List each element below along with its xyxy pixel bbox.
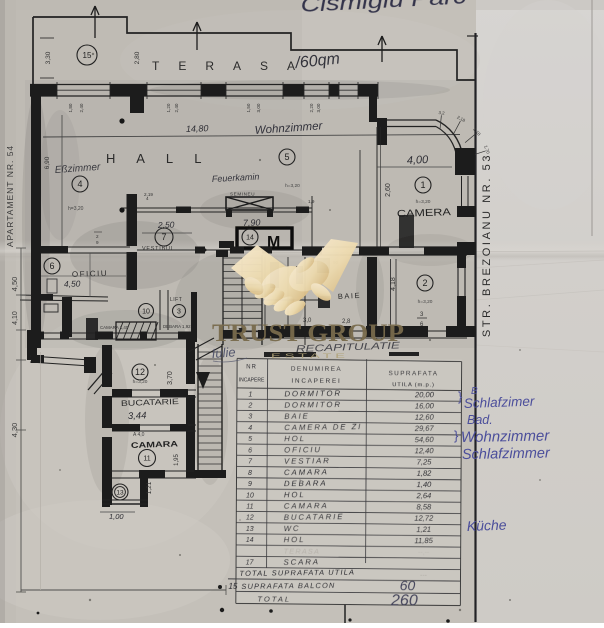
svg-text:14: 14 [246, 235, 254, 242]
svg-text:Schlafzimmer: Schlafzimmer [462, 445, 551, 463]
svg-text:VESTIBUL: VESTIBUL [142, 246, 174, 252]
svg-text:2: 2 [96, 234, 99, 239]
svg-text:1,82: 1,82 [417, 469, 433, 478]
svg-text:HOL: HOL [284, 434, 306, 443]
svg-text:UTILA (m.p.): UTILA (m.p.) [392, 382, 434, 388]
svg-text:3,30: 3,30 [45, 51, 52, 64]
svg-text:1,21: 1,21 [416, 525, 431, 534]
svg-text:DORMITOR: DORMITOR [284, 389, 342, 399]
svg-text:16,00: 16,00 [415, 401, 435, 410]
svg-text:11: 11 [246, 503, 253, 510]
svg-text:9: 9 [248, 481, 252, 488]
svg-text:TERASA: TERASA [152, 59, 314, 73]
svg-text:TOTAL: TOTAL [257, 595, 291, 604]
svg-text:1: 1 [420, 180, 425, 190]
svg-text:3,70: 3,70 [167, 371, 174, 385]
svg-text:h=3,20: h=3,20 [285, 183, 300, 189]
svg-text:3,44: 3,44 [128, 410, 147, 422]
svg-text:STR. BREZOIANU NR. 53: STR. BREZOIANU NR. 53 [481, 153, 493, 337]
svg-text:BAIE: BAIE [338, 291, 362, 301]
svg-text:VESTIAR: VESTIAR [284, 456, 331, 466]
svg-text:E S T A T E: E S T A T E [271, 353, 346, 360]
svg-text:54,60: 54,60 [415, 435, 435, 444]
svg-text:2,60: 2,60 [385, 183, 392, 197]
svg-text:1,50: 1,50 [246, 103, 251, 112]
svg-text:14: 14 [246, 537, 254, 544]
svg-text:SEMINEU: SEMINEU [230, 192, 255, 197]
svg-text:15: 15 [228, 582, 237, 591]
svg-text:1,40: 1,40 [416, 480, 432, 489]
svg-text:3,00: 3,00 [316, 103, 321, 112]
svg-text:8,58: 8,58 [416, 502, 432, 511]
svg-text:SUPRAFATA: SUPRAFATA [389, 370, 439, 377]
svg-text:}: } [458, 389, 463, 404]
svg-text:BAIE: BAIE [284, 412, 309, 421]
svg-text:--,--: --,-- [418, 549, 430, 556]
svg-text:8: 8 [248, 470, 252, 477]
svg-text:12,60: 12,60 [415, 413, 435, 422]
svg-text:DENUMIREA: DENUMIREA [291, 366, 342, 373]
svg-text:6: 6 [248, 447, 252, 454]
svg-text:1,9: 1,9 [308, 199, 315, 204]
svg-text:7: 7 [161, 232, 166, 242]
svg-text:2,20: 2,20 [309, 103, 314, 112]
svg-text:h=3,20: h=3,20 [416, 199, 431, 205]
svg-text:4: 4 [248, 425, 252, 432]
svg-text:BUCATARIE: BUCATARIE [284, 512, 345, 522]
svg-text:4: 4 [146, 196, 149, 201]
svg-text:3,2: 3,2 [438, 110, 445, 116]
svg-text:H A L L: H A L L [106, 151, 210, 166]
svg-text:12: 12 [135, 367, 145, 377]
svg-text:HOL: HOL [284, 490, 306, 499]
svg-text:SCARA: SCARA [283, 557, 319, 566]
svg-text:1,20: 1,20 [166, 103, 171, 112]
svg-text:7,25: 7,25 [417, 457, 433, 466]
svg-text:INCAPEREI: INCAPEREI [291, 378, 341, 385]
svg-text:Wohnzimmer: Wohnzimmer [461, 427, 551, 446]
svg-text:h=3,20: h=3,20 [68, 206, 84, 212]
svg-text:DEBARA 1,92: DEBARA 1,92 [163, 324, 191, 329]
svg-text:4,10: 4,10 [12, 311, 19, 325]
svg-text:APARTAMENT NR. 54: APARTAMENT NR. 54 [5, 145, 15, 247]
svg-text:LIFT: LIFT [170, 297, 182, 303]
svg-text:CAMARA 1,40: CAMARA 1,40 [100, 325, 129, 330]
svg-text:TERASA: TERASA [284, 547, 320, 556]
svg-text:12: 12 [246, 515, 254, 522]
svg-text:Küche: Küche [467, 517, 507, 534]
svg-text:CAMARA: CAMARA [131, 439, 179, 450]
svg-text:TOTAL SUPRAFATA UTILA: TOTAL SUPRAFATA UTILA [239, 568, 355, 578]
svg-text:A 4,0: A 4,0 [133, 432, 145, 438]
svg-text:1,21: 1,21 [146, 481, 153, 494]
svg-text:6: 6 [49, 261, 54, 271]
svg-text:15: 15 [83, 51, 92, 60]
svg-text:29,67: 29,67 [414, 424, 435, 433]
svg-text:---: --- [420, 572, 428, 579]
svg-text:TRUST GROUP: TRUST GROUP [212, 320, 404, 347]
svg-text:Bad.: Bad. [467, 413, 493, 427]
svg-text:CAMARA: CAMARA [284, 467, 329, 477]
svg-text:260: 260 [390, 592, 418, 609]
svg-text:4,00: 4,00 [407, 154, 430, 167]
svg-text:60: 60 [400, 577, 416, 593]
svg-text:13: 13 [246, 526, 254, 533]
svg-text:Schlafzimer: Schlafzimer [464, 394, 536, 411]
svg-text:5: 5 [248, 436, 252, 443]
svg-text:17: 17 [246, 560, 255, 567]
svg-text:WC: WC [284, 524, 301, 533]
svg-text:14,80: 14,80 [186, 123, 209, 134]
svg-text:13: 13 [116, 489, 124, 496]
svg-text:3,00: 3,00 [256, 103, 261, 112]
svg-text:INCAPERE: INCAPERE [239, 377, 265, 383]
svg-text:2,40: 2,40 [79, 103, 84, 112]
svg-text:12,40: 12,40 [415, 446, 435, 455]
svg-text:3: 3 [177, 309, 181, 316]
svg-text:20,00: 20,00 [414, 390, 435, 399]
svg-text:DORMITOR: DORMITOR [284, 400, 342, 410]
svg-text:OFICIU: OFICIU [284, 445, 322, 454]
svg-text:1,95: 1,95 [174, 454, 180, 466]
svg-text:1,80: 1,80 [68, 103, 73, 112]
svg-text:1: 1 [248, 391, 252, 398]
svg-text:10: 10 [246, 492, 254, 499]
svg-text:HOL: HOL [284, 535, 306, 544]
svg-text:11,85: 11,85 [414, 536, 433, 545]
svg-text:CAMERA DE ZI: CAMERA DE ZI [284, 422, 362, 432]
svg-text:2: 2 [247, 402, 252, 409]
svg-text:h=3,20: h=3,20 [133, 379, 148, 385]
svg-text:5: 5 [284, 152, 289, 162]
svg-text:DEBARA: DEBARA [284, 479, 328, 489]
svg-text:2,80: 2,80 [134, 51, 141, 64]
svg-text:3: 3 [248, 414, 252, 421]
svg-text:2,40: 2,40 [174, 103, 179, 112]
svg-text:NR: NR [246, 364, 257, 370]
svg-text:h=3,20: h=3,20 [418, 299, 433, 305]
svg-text:9: 9 [96, 240, 99, 245]
svg-text:4: 4 [77, 179, 82, 189]
svg-text:CAMARA: CAMARA [284, 501, 329, 511]
svg-text:6,90: 6,90 [44, 156, 51, 169]
svg-text:4,30: 4,30 [10, 423, 19, 438]
svg-text:1,00: 1,00 [109, 512, 124, 521]
svg-text:SUPRAFATA BALCON: SUPRAFATA BALCON [241, 581, 335, 591]
svg-text:2,64: 2,64 [415, 491, 431, 500]
svg-text:2: 2 [422, 278, 427, 288]
svg-text:4,50: 4,50 [64, 278, 81, 289]
svg-text:4,50: 4,50 [10, 277, 19, 292]
svg-text:11: 11 [143, 456, 150, 463]
svg-text:12,72: 12,72 [414, 513, 434, 522]
svg-text:CAMERA: CAMERA [397, 207, 452, 220]
svg-text:}: } [454, 428, 459, 443]
svg-text:10: 10 [142, 309, 150, 316]
